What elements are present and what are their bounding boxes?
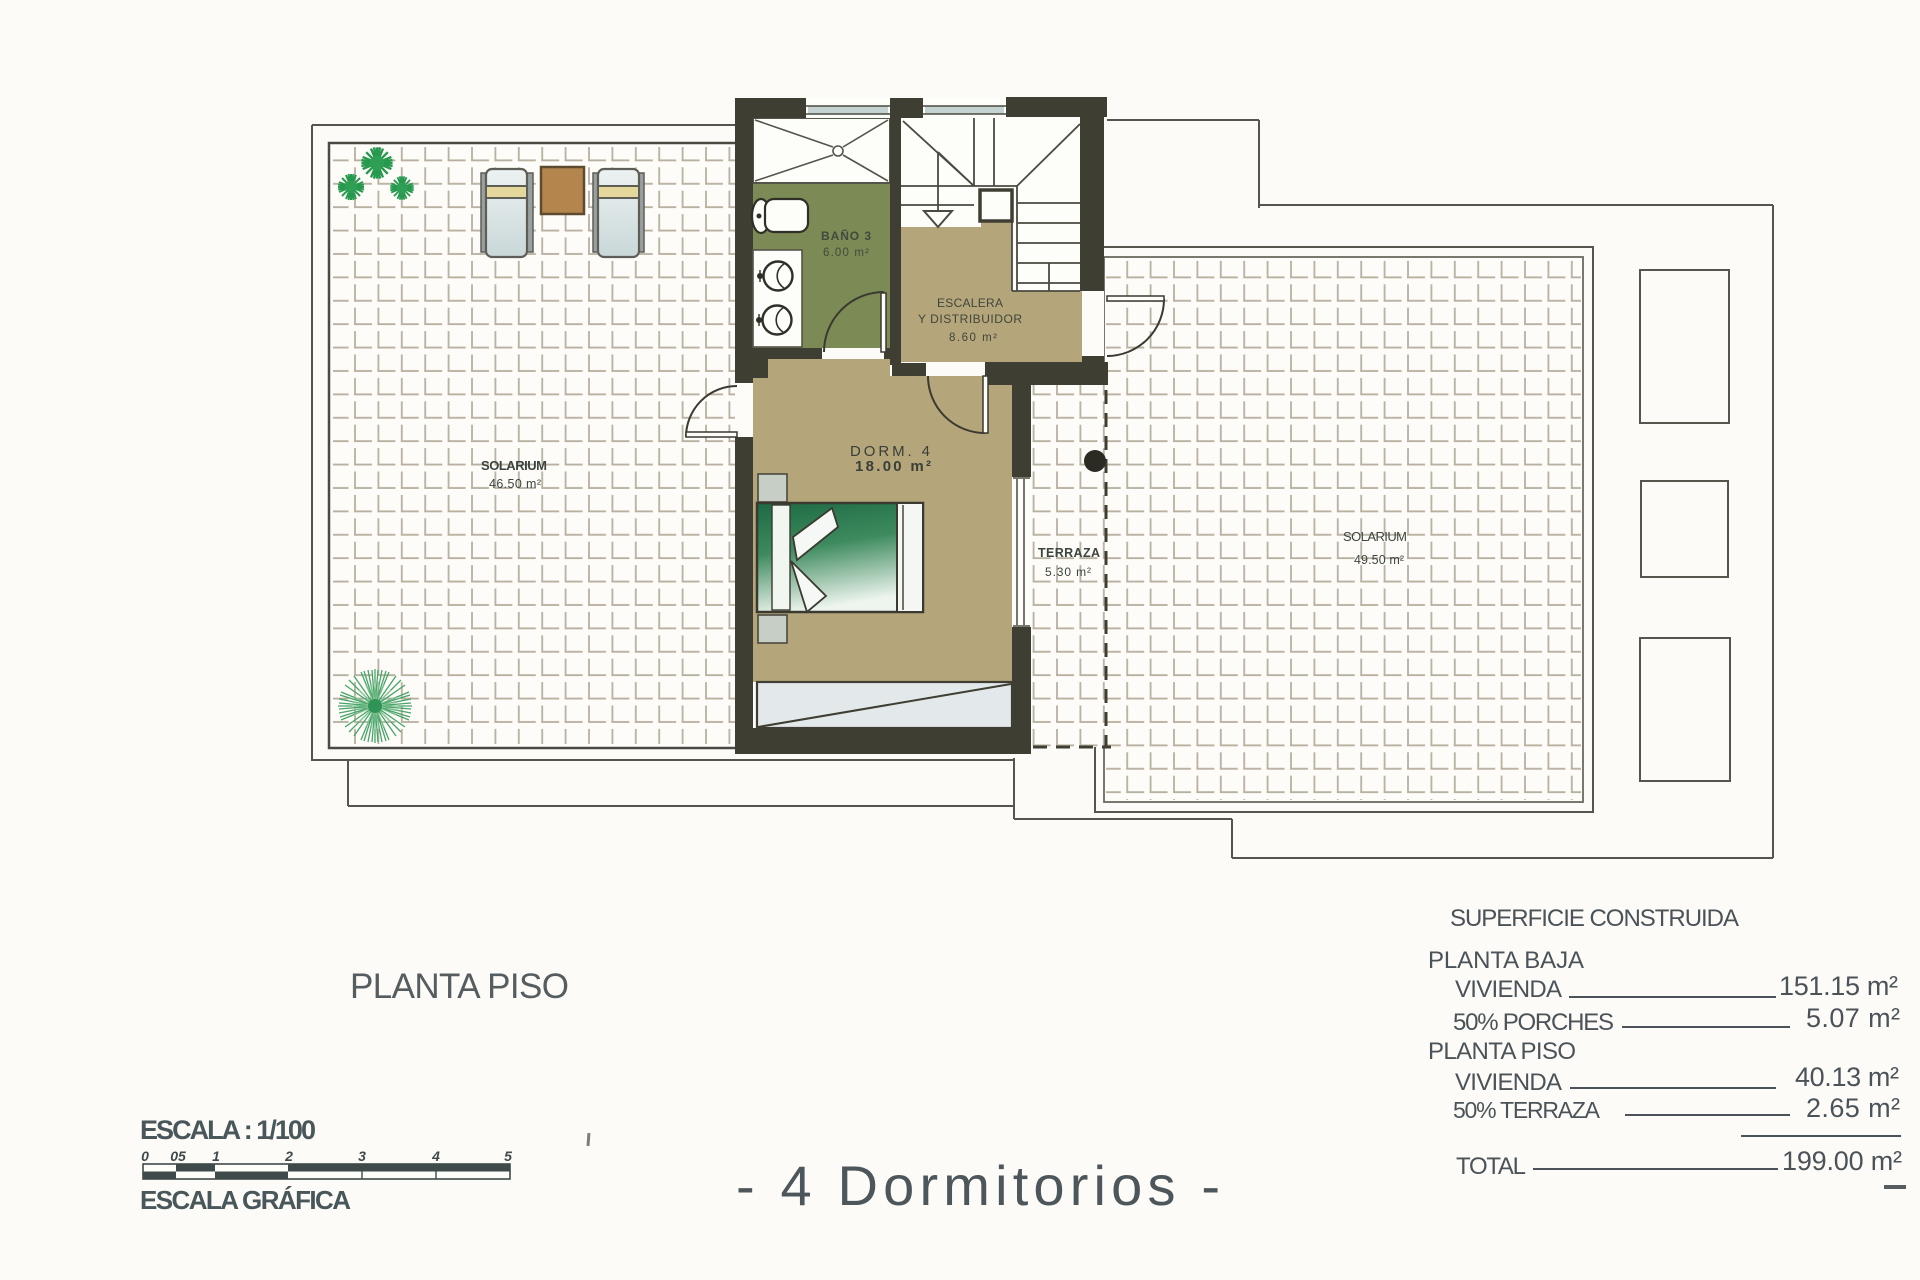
svg-text:SOLARIUM: SOLARIUM xyxy=(1343,529,1407,544)
svg-text:0: 0 xyxy=(141,1148,149,1164)
svg-text:VIVIENDA: VIVIENDA xyxy=(1455,1069,1562,1096)
svg-text:6.00 m²: 6.00 m² xyxy=(823,247,869,259)
svg-text:BAÑO 3: BAÑO 3 xyxy=(821,228,871,243)
svg-text:40.13 m²: 40.13 m² xyxy=(1795,1062,1899,1092)
svg-text:SUPERFICIE CONSTRUIDA: SUPERFICIE CONSTRUIDA xyxy=(1450,905,1739,932)
svg-text:199.00 m²: 199.00 m² xyxy=(1782,1146,1902,1176)
svg-text:1: 1 xyxy=(212,1148,220,1164)
svg-text:- 4 Dormitorios -: - 4 Dormitorios - xyxy=(736,1154,1220,1217)
svg-text:ESCALERA: ESCALERA xyxy=(937,296,1003,310)
svg-text:5.07 m²: 5.07 m² xyxy=(1806,1003,1900,1033)
svg-text:2.65 m²: 2.65 m² xyxy=(1806,1093,1900,1123)
svg-text:PLANTA PISO: PLANTA PISO xyxy=(350,967,569,1006)
svg-text:18.00 m²: 18.00 m² xyxy=(855,458,931,475)
svg-text:46.50 m²: 46.50 m² xyxy=(489,477,541,491)
svg-text:Y DISTRIBUIDOR: Y DISTRIBUIDOR xyxy=(918,312,1022,326)
svg-text:8.60 m²: 8.60 m² xyxy=(949,332,997,344)
svg-text:2: 2 xyxy=(284,1148,293,1164)
svg-text:ESCALA : 1/100: ESCALA : 1/100 xyxy=(140,1115,316,1145)
svg-text:ESCALA GRÁFICA: ESCALA GRÁFICA xyxy=(140,1185,351,1215)
svg-text:50% TERRAZA: 50% TERRAZA xyxy=(1453,1097,1601,1123)
svg-text:151.15 m²: 151.15 m² xyxy=(1779,971,1898,1001)
svg-text:TERRAZA: TERRAZA xyxy=(1038,546,1100,560)
svg-text:5.30 m²: 5.30 m² xyxy=(1045,565,1091,579)
svg-text:PLANTA BAJA: PLANTA BAJA xyxy=(1428,947,1584,974)
svg-text:50% PORCHES: 50% PORCHES xyxy=(1453,1009,1614,1036)
svg-text:PLANTA PISO: PLANTA PISO xyxy=(1428,1038,1576,1065)
svg-text:05: 05 xyxy=(170,1148,186,1164)
svg-text:5: 5 xyxy=(504,1148,512,1164)
svg-text:TOTAL: TOTAL xyxy=(1456,1153,1526,1180)
svg-text:49.50 m²: 49.50 m² xyxy=(1354,553,1404,567)
svg-text:4: 4 xyxy=(431,1148,440,1164)
svg-text:3: 3 xyxy=(358,1148,366,1164)
svg-text:VIVIENDA: VIVIENDA xyxy=(1455,976,1562,1003)
svg-text:SOLARIUM: SOLARIUM xyxy=(481,458,547,473)
